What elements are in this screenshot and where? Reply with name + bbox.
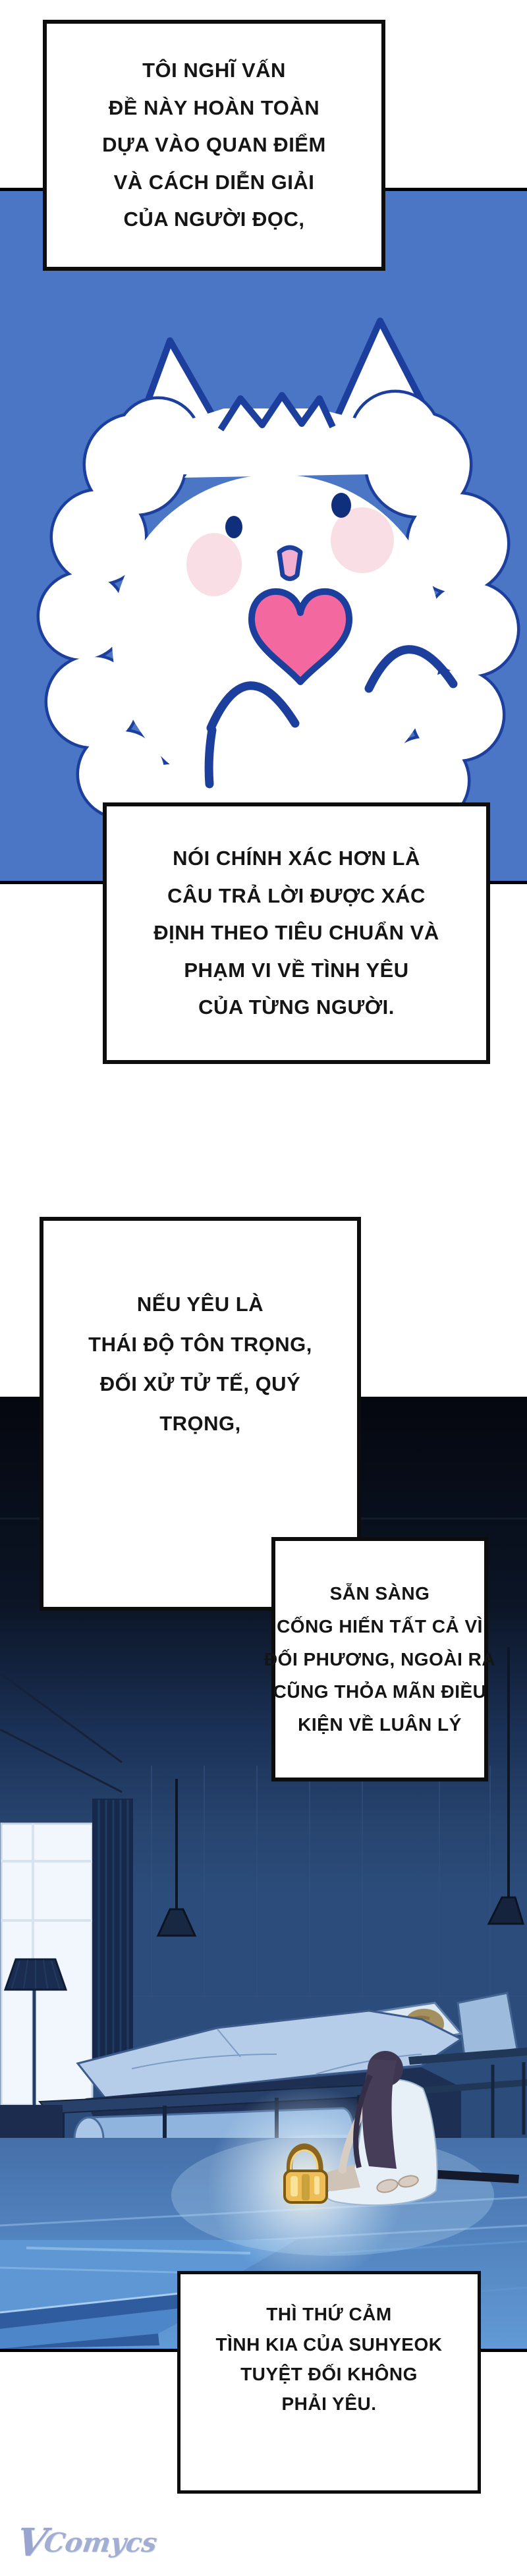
speech-line: THÁI ĐỘ TÔN TRỌNG, (88, 1325, 312, 1364)
speech-line: TRỌNG, (159, 1404, 241, 1443)
speech-line: CỦA NGƯỜI ĐỌC, (123, 201, 304, 238)
speech-line: VÀ CÁCH DIỄN GIẢI (114, 164, 315, 201)
speech-line: ĐỐI XỬ TỬ TẾ, QUÝ (100, 1364, 301, 1404)
cat-head-fur-icon (221, 395, 333, 430)
speech-line: PHẢI YÊU. (281, 2389, 376, 2419)
speech-line: CÂU TRẢ LỜI ĐƯỢC XÁC (167, 878, 426, 914)
panel-cat (0, 188, 527, 884)
headboard (458, 1993, 517, 2057)
cat-eye-right-icon (331, 493, 351, 518)
speech-line: TÌNH KIA CỦA SUHYEOK (216, 2330, 443, 2359)
speech-line: DỰA VÀO QUAN ĐIỂM (102, 126, 326, 163)
speech-line: SẴN SÀNG (330, 1577, 430, 1610)
cat-mouth-icon (279, 547, 300, 579)
comic-page: TÔI NGHĨ VẤN ĐỀ NÀY HOÀN TOÀN DỰA VÀO QU… (0, 0, 527, 2576)
speech-line: ĐỐI PHƯƠNG, NGOÀI RA (264, 1643, 495, 1676)
speech-line: THÌ THỨ CẢM (266, 2299, 391, 2329)
cat-blush-left-icon (186, 533, 242, 596)
watermark-logo: VComycs (15, 2527, 159, 2558)
speech-line: KIỆN VỀ LUÂN LÝ (298, 1708, 462, 1741)
speech-line: CŨNG THỎA MÃN ĐIỀU (273, 1675, 487, 1708)
speech-line: NÓI CHÍNH XÁC HƠN LÀ (173, 840, 420, 877)
speech-line: TUYỆT ĐỐI KHÔNG (240, 2359, 418, 2389)
speech-box-4: SẴN SÀNG CỐNG HIẾN TẤT CẢ VÌ ĐỐI PHƯƠNG,… (271, 1537, 488, 1781)
watermark-text: Comycs (42, 2527, 159, 2558)
cat-illustration (0, 191, 527, 881)
speech-line: PHẠM VI VỀ TÌNH YÊU (184, 952, 408, 989)
speech-box-1: TÔI NGHĨ VẤN ĐỀ NÀY HOÀN TOÀN DỰA VÀO QU… (43, 20, 385, 271)
speech-box-2: NÓI CHÍNH XÁC HƠN LÀ CÂU TRẢ LỜI ĐƯỢC XÁ… (103, 802, 490, 1064)
cat-eye-left-icon (225, 516, 242, 538)
speech-line: NẾU YÊU LÀ (137, 1285, 263, 1324)
speech-line: CỐNG HIẾN TẤT CẢ VÌ (277, 1610, 483, 1643)
speech-line: TÔI NGHĨ VẤN (142, 52, 286, 89)
speech-box-5: THÌ THỨ CẢM TÌNH KIA CỦA SUHYEOK TUYỆT Đ… (177, 2271, 481, 2494)
speech-line: ĐỀ NÀY HOÀN TOÀN (109, 90, 319, 126)
speech-line: ĐỊNH THEO TIÊU CHUẨN VÀ (153, 914, 439, 951)
girl-hand (339, 2166, 347, 2173)
speech-line: CỦA TỪNG NGƯỜI. (198, 989, 395, 1026)
